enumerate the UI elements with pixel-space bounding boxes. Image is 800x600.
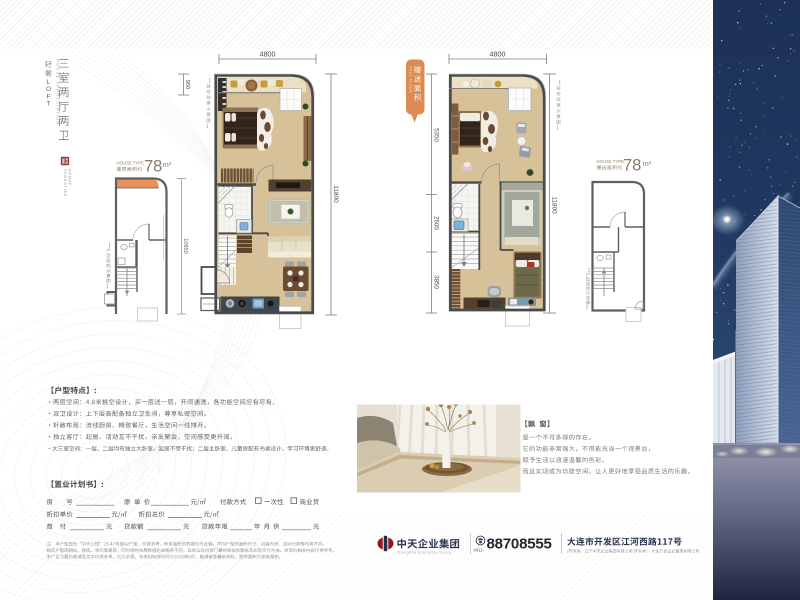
svg-text:FREE FLOOR: FREE FLOOR <box>409 66 413 93</box>
svg-text:4800: 4800 <box>490 50 506 59</box>
svg-text:10850: 10850 <box>182 238 188 254</box>
svg-text:11800: 11800 <box>551 196 558 214</box>
svg-text:3850: 3850 <box>433 275 440 289</box>
svg-text:88708555: 88708555 <box>487 536 552 553</box>
svg-text:F: F <box>47 93 51 100</box>
svg-text:GROUP: GROUP <box>68 169 72 186</box>
svg-text:T: T <box>47 101 51 108</box>
svg-text:2600: 2600 <box>433 216 440 230</box>
svg-text:4800: 4800 <box>260 50 276 59</box>
svg-text:78: 78 <box>623 157 641 175</box>
svg-text:m²: m² <box>163 160 172 169</box>
svg-text:m²: m² <box>643 159 652 168</box>
svg-text:11800: 11800 <box>332 185 339 203</box>
svg-text:HOUSE TYPE: HOUSE TYPE <box>117 161 145 166</box>
svg-text:78: 78 <box>144 158 162 176</box>
svg-text:Zhongtian Enterprise Group: Zhongtian Enterprise Group <box>397 551 451 555</box>
svg-text:L: L <box>47 79 51 86</box>
svg-text:0411-: 0411- <box>474 548 485 553</box>
svg-text:950: 950 <box>184 80 190 90</box>
svg-text:O: O <box>46 86 51 93</box>
svg-text:ZHONGTIAN: ZHONGTIAN <box>63 169 67 197</box>
svg-text:HOUSE TYPE: HOUSE TYPE <box>597 159 625 164</box>
svg-text:5350: 5350 <box>433 128 440 142</box>
